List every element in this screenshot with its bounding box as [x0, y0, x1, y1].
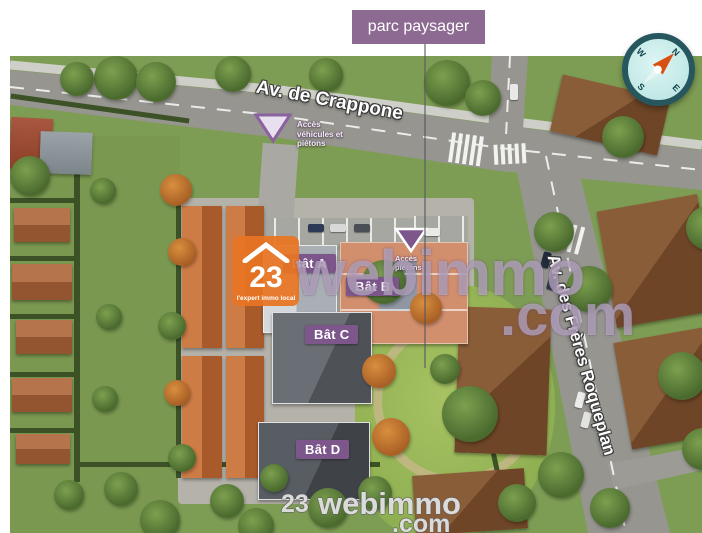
existing-house	[16, 434, 70, 464]
existing-house	[12, 264, 72, 300]
car	[330, 224, 346, 232]
park-banner: parc paysager	[352, 10, 485, 44]
aerial-map: Accès véhicules et piétons Accès piétons…	[10, 56, 702, 533]
existing-house	[16, 320, 72, 354]
tree	[498, 484, 536, 522]
row-houses	[182, 206, 222, 348]
hedge	[10, 314, 76, 319]
access-marker-icon	[252, 112, 294, 144]
tree	[92, 386, 118, 412]
building-label-C: Bât C	[305, 325, 358, 344]
tree	[538, 452, 584, 498]
building-B-walkway	[341, 309, 467, 311]
tree	[602, 116, 644, 158]
tree	[210, 484, 244, 518]
existing-house	[12, 378, 72, 412]
tree	[140, 500, 180, 533]
tree-autumn	[372, 418, 410, 456]
tree	[94, 56, 138, 100]
tree-autumn	[160, 174, 192, 206]
car	[308, 224, 324, 232]
tree-autumn	[362, 354, 396, 388]
tree	[424, 60, 470, 106]
tree	[168, 444, 196, 472]
tree	[308, 488, 348, 528]
tree	[104, 472, 138, 506]
hedge	[10, 372, 76, 377]
car	[510, 84, 518, 100]
hedge	[10, 198, 76, 203]
tree-autumn	[164, 380, 190, 406]
tree	[96, 304, 122, 330]
hedge	[10, 256, 76, 261]
tree	[158, 312, 186, 340]
tree	[90, 178, 116, 204]
site-plan-image: Accès véhicules et piétons Accès piétons…	[0, 0, 702, 533]
access-label-pedestrian: Accès piétons	[395, 254, 441, 272]
tree	[590, 488, 630, 528]
tree	[658, 352, 702, 400]
building-label-A: Bât A	[283, 254, 336, 273]
tree	[10, 156, 50, 196]
tree	[54, 480, 84, 510]
existing-house	[14, 208, 70, 242]
tree	[465, 80, 501, 116]
tree	[60, 62, 94, 96]
tree	[215, 56, 251, 92]
hedge	[10, 428, 76, 433]
park-leader-line	[424, 44, 426, 368]
row-houses	[226, 206, 264, 348]
building-label-D: Bât D	[296, 440, 349, 459]
compass-rose: N E S W	[622, 33, 695, 106]
tree	[358, 476, 392, 510]
tree	[430, 354, 460, 384]
tree	[442, 386, 498, 442]
tree	[136, 62, 176, 102]
car	[354, 224, 370, 232]
access-label-vehicles: Accès véhicules et piétons	[297, 120, 357, 149]
building-label-B: Bât B	[346, 277, 399, 296]
tree-autumn	[410, 292, 442, 324]
tree	[260, 464, 288, 492]
tree-autumn	[168, 238, 196, 266]
